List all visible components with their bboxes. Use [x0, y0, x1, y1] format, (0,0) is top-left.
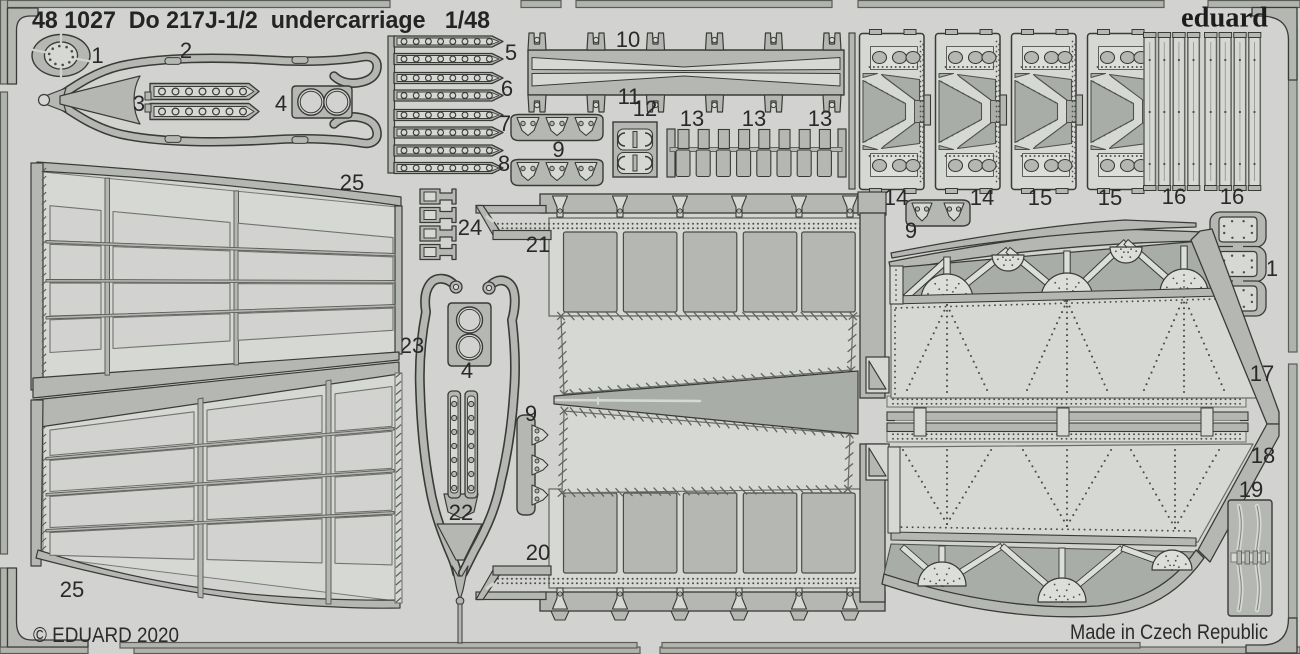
svg-text:24: 24 [458, 215, 482, 240]
svg-text:9: 9 [552, 137, 564, 162]
svg-text:4: 4 [275, 91, 287, 116]
svg-text:16: 16 [1162, 184, 1186, 209]
svg-text:2: 2 [180, 38, 192, 63]
svg-text:20: 20 [526, 540, 550, 565]
svg-text:9: 9 [905, 218, 917, 243]
svg-text:9: 9 [525, 401, 537, 426]
svg-text:eduard: eduard [1181, 2, 1268, 34]
svg-text:13: 13 [742, 106, 766, 131]
svg-text:19: 19 [1239, 477, 1263, 502]
svg-text:1: 1 [1266, 256, 1278, 281]
svg-text:23: 23 [400, 333, 424, 358]
svg-text:12: 12 [633, 96, 657, 121]
svg-text:15: 15 [1098, 185, 1122, 210]
svg-text:7: 7 [499, 111, 511, 136]
svg-text:8: 8 [498, 151, 510, 176]
svg-text:21: 21 [526, 232, 550, 257]
svg-text:4: 4 [461, 358, 473, 383]
svg-text:10: 10 [616, 27, 640, 52]
svg-text:Made in Czech Republic: Made in Czech Republic [1070, 621, 1268, 644]
svg-text:14: 14 [970, 185, 994, 210]
svg-text:14: 14 [884, 185, 908, 210]
svg-text:25: 25 [60, 577, 84, 602]
svg-text:15: 15 [1028, 185, 1052, 210]
svg-text:22: 22 [449, 500, 473, 525]
svg-text:5: 5 [505, 40, 517, 65]
svg-text:6: 6 [501, 76, 513, 101]
svg-text:13: 13 [680, 106, 704, 131]
svg-text:13: 13 [808, 106, 832, 131]
svg-text:48 1027 Do 217J-1/2 undercar: 48 1027 Do 217J-1/2 undercarriage 1/48 [32, 7, 490, 34]
svg-text:1: 1 [91, 43, 103, 68]
svg-text:3: 3 [133, 91, 145, 116]
svg-text:© EDUARD 2020: © EDUARD 2020 [33, 624, 179, 647]
svg-text:17: 17 [1250, 361, 1274, 386]
svg-text:16: 16 [1220, 184, 1244, 209]
svg-text:25: 25 [340, 170, 364, 195]
svg-text:18: 18 [1251, 443, 1275, 468]
